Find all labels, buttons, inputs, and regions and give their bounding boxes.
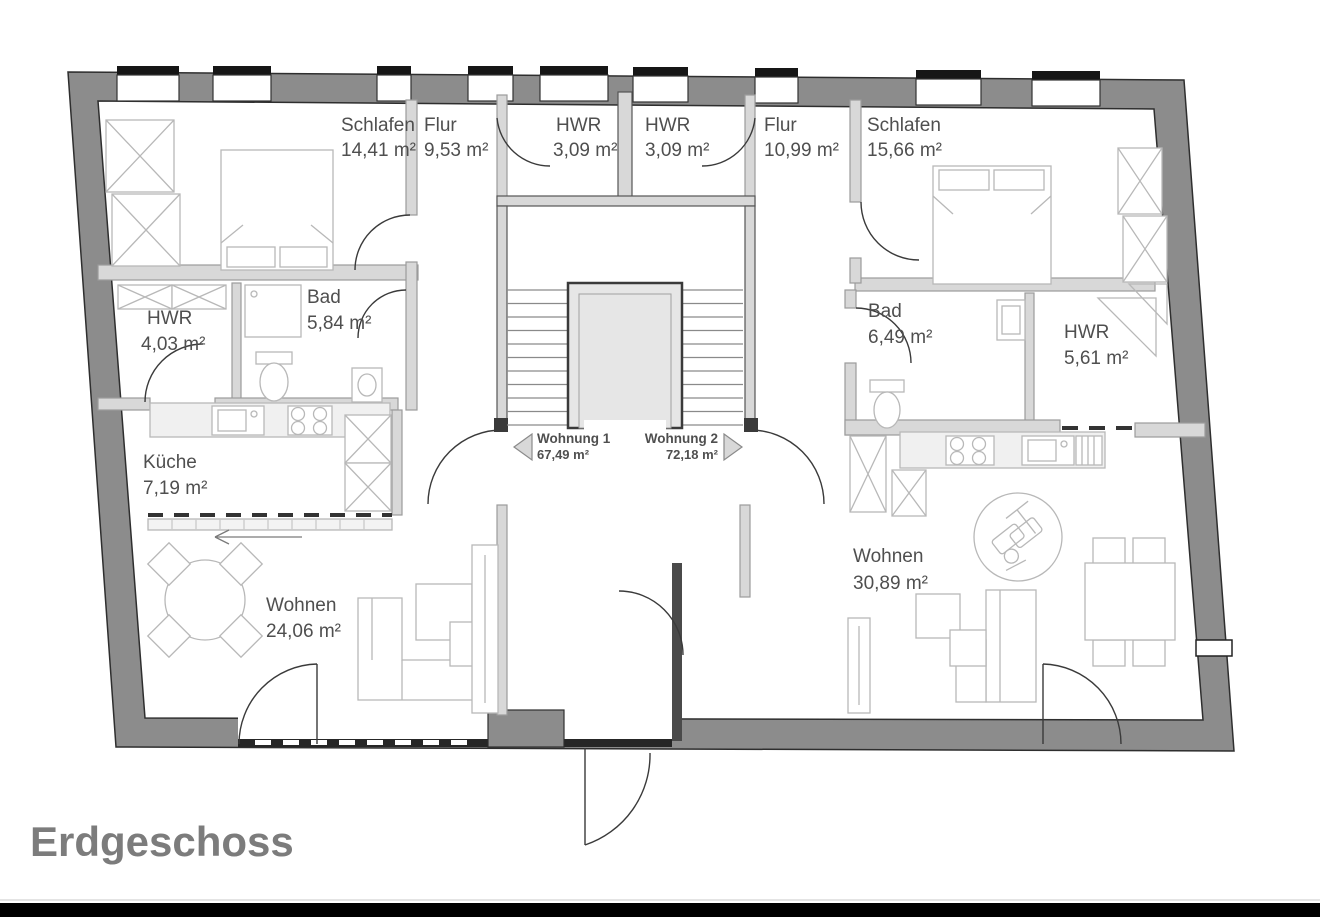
apartment2-name: Wohnung 2 xyxy=(645,431,718,446)
room-area: 3,09 m² xyxy=(553,140,617,161)
bed-double-right xyxy=(933,166,1051,284)
shower-icon xyxy=(245,285,301,337)
sink-icon xyxy=(212,406,264,435)
wall xyxy=(497,95,507,206)
apartment1-name: Wohnung 1 xyxy=(537,431,611,446)
room-area: 6,49 m² xyxy=(868,327,932,348)
room-name: Wohnen xyxy=(266,595,336,616)
room-name: Küche xyxy=(143,452,197,473)
page-background xyxy=(0,0,1320,917)
room-name: Schlafen xyxy=(867,115,941,136)
wall xyxy=(497,196,755,206)
vestibule-wall xyxy=(672,563,682,741)
room-area: 15,66 m² xyxy=(867,140,942,161)
wall xyxy=(845,290,856,308)
window-icon xyxy=(1032,71,1100,106)
room-name: Schlafen xyxy=(341,115,415,136)
window-icon xyxy=(117,66,179,101)
window-icon xyxy=(377,66,411,101)
wall xyxy=(406,262,417,410)
window-icon xyxy=(916,70,981,105)
room-area: 10,99 m² xyxy=(764,140,839,161)
apartment1-area: 67,49 m² xyxy=(537,447,590,462)
room-area: 3,09 m² xyxy=(645,140,709,161)
room-name: Bad xyxy=(307,287,341,308)
wall xyxy=(850,258,861,283)
wall xyxy=(1135,423,1205,437)
room-name: Flur xyxy=(764,115,797,136)
room-name: HWR xyxy=(147,308,192,329)
wall xyxy=(850,100,861,202)
wall xyxy=(232,283,241,408)
stair-landing-inner xyxy=(579,294,671,428)
wall xyxy=(1025,293,1034,425)
room-name: HWR xyxy=(645,115,690,136)
stove-icon xyxy=(946,436,994,465)
apartment2-area: 72,18 m² xyxy=(666,447,719,462)
window-icon xyxy=(633,67,688,102)
bottom-black-bar xyxy=(0,903,1320,917)
floorplan-page: Schlafen 14,41 m² Flur 9,53 m² HWR 3,09 … xyxy=(0,0,1320,917)
room-name: Bad xyxy=(868,301,902,322)
room-area: 14,41 m² xyxy=(341,140,416,161)
wall xyxy=(745,95,755,206)
room-area: 4,03 m² xyxy=(141,334,205,355)
room-name: Flur xyxy=(424,115,457,136)
wall xyxy=(740,505,750,597)
room-area: 24,06 m² xyxy=(266,621,341,642)
room-area: 7,19 m² xyxy=(143,478,207,499)
kitchen-lowboard xyxy=(148,519,392,530)
page-title: Erdgeschoss xyxy=(30,818,294,865)
floorplan-canvas: Schlafen 14,41 m² Flur 9,53 m² HWR 3,09 … xyxy=(0,0,1320,917)
window-icon xyxy=(755,68,798,103)
washbasin-icon xyxy=(997,300,1025,340)
window-icon xyxy=(540,66,608,101)
room-area: 5,84 m² xyxy=(307,313,371,334)
room-name: Wohnen xyxy=(853,546,923,567)
room-area: 30,89 m² xyxy=(853,573,928,594)
window-icon xyxy=(213,66,271,101)
wall xyxy=(392,410,402,515)
sink-icon xyxy=(1022,436,1102,465)
separator-line xyxy=(0,899,1320,901)
right-wall-window xyxy=(1196,640,1232,656)
stair-landing-opening xyxy=(584,420,666,430)
bed-double-left xyxy=(221,150,333,270)
sink-icon xyxy=(352,368,382,402)
dining-table-round xyxy=(148,543,262,657)
wall xyxy=(618,92,632,204)
wall xyxy=(497,206,507,430)
room-name: HWR xyxy=(556,115,601,136)
stove-icon xyxy=(288,406,332,435)
wall xyxy=(745,206,755,430)
room-area: 5,61 m² xyxy=(1064,348,1128,369)
room-area: 9,53 m² xyxy=(424,140,488,161)
shelf-icon xyxy=(118,285,226,309)
room-name: HWR xyxy=(1064,322,1109,343)
wall xyxy=(98,398,150,410)
